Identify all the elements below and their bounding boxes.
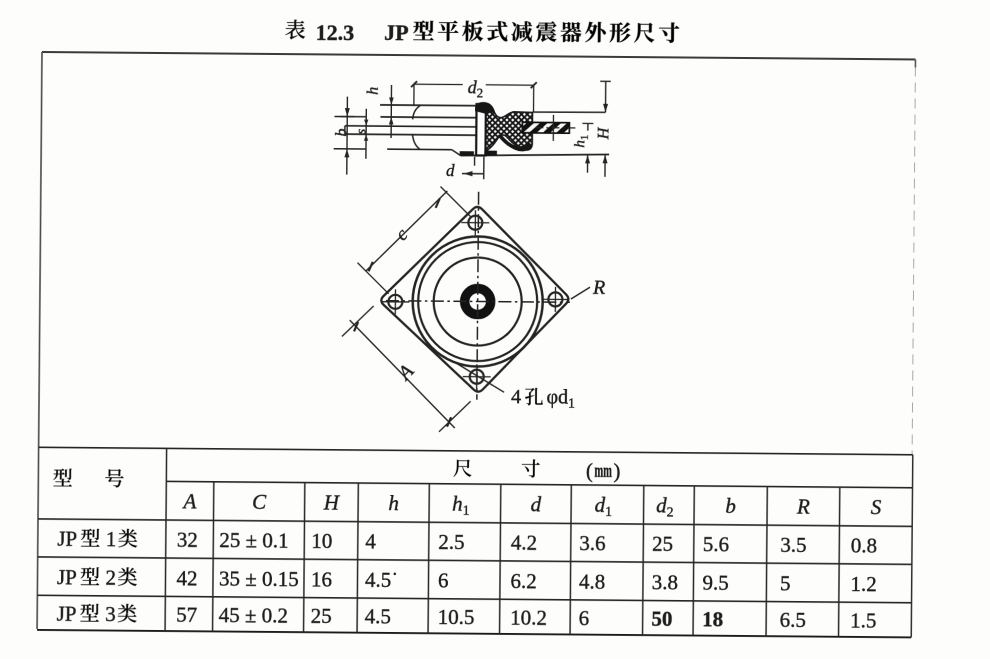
svg-text:5.6: 5.6 [703,532,729,556]
svg-text:2.5: 2.5 [438,530,464,554]
svg-text:A: A [392,360,418,386]
svg-text:4.2: 4.2 [511,531,537,555]
svg-text:4.5˙: 4.5˙ [365,568,398,592]
svg-text:R: R [796,494,810,518]
svg-text:4: 4 [511,386,521,408]
svg-text:10.5: 10.5 [438,605,475,629]
svg-text:3.8: 3.8 [652,570,678,594]
svg-text:d2: d2 [468,77,484,100]
svg-text:35 ± 0.15: 35 ± 0.15 [219,567,299,592]
svg-text:32: 32 [177,528,198,552]
svg-text:φd1: φd1 [546,386,575,411]
svg-text:d2: d2 [656,493,674,520]
svg-text:1.5: 1.5 [850,608,876,632]
svg-text:10.2: 10.2 [510,606,547,630]
svg-text:57: 57 [176,603,197,627]
svg-text:6: 6 [438,568,449,592]
svg-text:s: s [354,128,369,134]
svg-text:9.5: 9.5 [702,571,728,595]
svg-text:6.2: 6.2 [510,569,536,593]
svg-text:d: d [531,492,542,516]
svg-text:6: 6 [579,606,590,630]
svg-text:18: 18 [702,607,723,631]
svg-text:25: 25 [652,532,673,556]
svg-text:d: d [446,161,455,180]
svg-text:3.5: 3.5 [780,533,806,557]
svg-text:25 ± 0.1: 25 ± 0.1 [219,528,288,553]
svg-text:42: 42 [176,566,197,590]
svg-text:2: 2 [105,566,116,590]
svg-text:b: b [725,494,736,518]
svg-text:h: h [388,491,399,515]
svg-text:50: 50 [651,607,672,631]
svg-text:1.2: 1.2 [850,572,876,596]
svg-text:d1: d1 [595,493,613,520]
svg-text:4.8: 4.8 [579,570,605,594]
svg-text:h1: h1 [572,135,591,148]
svg-text:(: ( [586,458,593,482]
svg-text:mm: mm [594,461,612,482]
svg-text:12.3: 12.3 [316,20,355,45]
svg-text:C: C [252,490,267,514]
svg-text:3.6: 3.6 [579,531,605,555]
svg-text:3: 3 [105,602,116,626]
svg-text:A: A [181,489,196,513]
svg-text:JP: JP [57,565,77,589]
svg-text:25: 25 [311,604,332,628]
svg-text:10: 10 [311,529,332,553]
svg-text:S: S [871,495,882,519]
svg-text:0.8: 0.8 [851,533,877,557]
svg-text:h: h [365,87,382,95]
svg-text:H: H [595,126,612,140]
svg-text:4: 4 [365,529,376,553]
svg-text:JP: JP [57,602,77,626]
svg-text:JP: JP [384,20,409,45]
svg-text:4.5: 4.5 [365,604,391,628]
svg-text:b: b [333,128,350,136]
svg-text:JP: JP [57,527,77,551]
svg-text:R: R [592,277,605,299]
svg-text:H: H [323,490,341,514]
svg-text:6.5: 6.5 [780,608,806,632]
svg-text:1: 1 [106,527,117,551]
svg-text:5: 5 [780,571,791,595]
svg-text:h1: h1 [452,492,470,519]
svg-text:16: 16 [311,567,332,591]
svg-text:): ) [613,459,620,483]
svg-text:45 ± 0.2: 45 ± 0.2 [219,603,288,628]
